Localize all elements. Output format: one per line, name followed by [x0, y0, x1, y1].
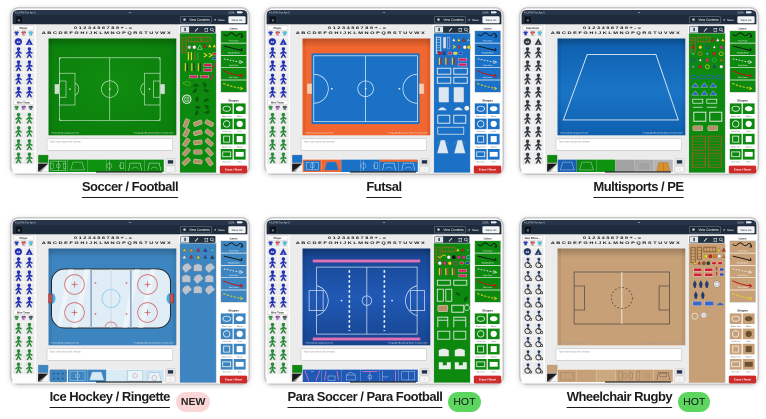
svg-text:Type notes about this session: Type notes about this session	[304, 140, 336, 143]
svg-text:A B C D E F G H I J K L M N O: A B C D E F G H I J K L M N O P Q R S T …	[550, 31, 680, 35]
svg-text:Square Line: Square Line	[222, 355, 232, 358]
svg-text:Circle: Circle	[746, 340, 751, 343]
svg-text:Dash Pass: Dash Pass	[229, 65, 238, 67]
svg-text:Ellipse Line: Ellipse Line	[476, 116, 486, 118]
svg-text:Powered by easy2coach.net: Powered by easy2coach.net	[306, 132, 334, 135]
svg-text:Circle Line: Circle Line	[222, 340, 231, 343]
svg-text:A: A	[537, 251, 539, 255]
svg-text:Lines: Lines	[230, 26, 238, 30]
svg-text:1: 1	[284, 317, 286, 321]
svg-text:Square Line: Square Line	[222, 145, 232, 148]
svg-text:4:13 PM Tue Apr 5: 4:13 PM Tue Apr 5	[524, 12, 545, 15]
svg-text:Straight Arrow: Straight Arrow	[736, 262, 749, 265]
svg-text:100%: 100%	[228, 222, 235, 225]
svg-text:Lines: Lines	[484, 236, 492, 240]
svg-text:Rect: Rect	[492, 371, 496, 374]
svg-text:1: 1	[30, 32, 32, 36]
svg-text:Straight Arrow: Straight Arrow	[736, 52, 749, 55]
svg-text:Straight Arrow: Straight Arrow	[482, 52, 495, 55]
svg-text:Erase / Reset: Erase / Reset	[225, 168, 242, 172]
svg-text:...: ...	[741, 94, 743, 97]
svg-text:Rect: Rect	[238, 371, 242, 374]
svg-text:Lines: Lines	[230, 236, 238, 240]
svg-text:×: ×	[272, 228, 275, 233]
svg-text:↺: ↺	[468, 18, 471, 22]
svg-text:A: A	[537, 41, 539, 45]
svg-text:...: ...	[741, 304, 743, 307]
svg-text:Powered by easy2coach.net: Powered by easy2coach.net	[560, 132, 588, 135]
svg-text:Powered by easy2coach.net: Powered by easy2coach.net	[306, 342, 334, 345]
svg-text:4:13 PM Tue Apr 5: 4:13 PM Tue Apr 5	[269, 12, 290, 15]
svg-text:Shapes: Shapes	[228, 99, 239, 103]
svg-text:Ellipse Line: Ellipse Line	[222, 116, 232, 118]
svg-text:Square: Square	[491, 355, 497, 358]
svg-text:Save: Save	[727, 228, 734, 232]
svg-text:Circle Line: Circle Line	[731, 340, 740, 343]
svg-text:Player: Player	[273, 236, 281, 240]
svg-text:Free Hand: Free Hand	[483, 249, 492, 252]
svg-text:0 1 2 3 4 5 6 7 8 9 + - =: 0 1 2 3 4 5 6 7 8 9 + - =	[328, 236, 386, 240]
svg-text:View Contents: View Contents	[189, 18, 210, 22]
svg-text:Free Hand: Free Hand	[483, 39, 492, 42]
svg-text:1: 1	[284, 242, 286, 246]
svg-text:A: A	[282, 251, 284, 255]
svg-text:Save As: Save As	[485, 18, 497, 22]
svg-text:Save As: Save As	[740, 18, 752, 22]
svg-text:Rect Line: Rect Line	[477, 161, 485, 164]
svg-text:Straight Arrow: Straight Arrow	[482, 262, 495, 265]
svg-text:•••: •••	[383, 12, 386, 14]
svg-text:•••: •••	[383, 222, 386, 224]
svg-text:•••: •••	[637, 12, 640, 14]
svg-text:Run Curve: Run Curve	[738, 76, 747, 79]
svg-text:Ellipse: Ellipse	[745, 326, 751, 328]
svg-text:Ellipse: Ellipse	[491, 326, 497, 328]
svg-text:0 1 2 3 4 5 6 7 8 9 + - =: 0 1 2 3 4 5 6 7 8 9 + - =	[328, 26, 386, 30]
svg-text:Lines: Lines	[484, 26, 492, 30]
svg-text:×: ×	[272, 18, 275, 23]
svg-text:A: A	[28, 41, 30, 45]
svg-text:Mini Team: Mini Team	[271, 101, 285, 105]
svg-text:Straight Arrow: Straight Arrow	[228, 52, 241, 55]
svg-text:Rect: Rect	[238, 161, 242, 164]
svg-text:33: 33	[271, 250, 275, 254]
svg-text:•••: •••	[129, 12, 132, 14]
svg-text:Lines: Lines	[738, 26, 746, 30]
svg-text:Type notes about this session: Type notes about this session	[50, 350, 82, 353]
svg-text:Ellipse Line: Ellipse Line	[730, 116, 740, 118]
svg-text:4:13 PM Tue Apr 5: 4:13 PM Tue Apr 5	[15, 12, 36, 15]
svg-text:Ellipse Line: Ellipse Line	[476, 326, 486, 328]
svg-text:Erase / Reset: Erase / Reset	[225, 378, 242, 382]
svg-text:0 1 2 3 4 5 6 7 8 9 + - =: 0 1 2 3 4 5 6 7 8 9 + - =	[74, 236, 132, 240]
svg-text:Dash Pass: Dash Pass	[483, 275, 492, 277]
svg-text:100%: 100%	[737, 12, 744, 15]
svg-text:Square: Square	[237, 355, 243, 358]
svg-text:Shapes: Shapes	[482, 309, 493, 313]
svg-text:↺: ↺	[214, 18, 217, 22]
svg-text:↺: ↺	[214, 228, 217, 232]
svg-text:Save As: Save As	[231, 18, 243, 22]
svg-text:4:13 PM Tue Apr 5: 4:13 PM Tue Apr 5	[269, 222, 290, 225]
svg-text:Circle Line: Circle Line	[476, 340, 485, 343]
svg-text:Substitute: Substitute	[525, 26, 539, 30]
svg-text:33: 33	[17, 250, 21, 254]
svg-text:100%: 100%	[482, 12, 489, 15]
svg-text:©Copyright Academy Sport 4 Co: ©Copyright Academy Sport 4 Coach 24.2	[387, 132, 428, 135]
svg-text:Save: Save	[218, 228, 225, 232]
svg-text:Save: Save	[727, 18, 734, 22]
svg-text:Square: Square	[745, 145, 751, 148]
svg-text:Dash Pass: Dash Pass	[483, 65, 492, 67]
svg-text:Ellipse: Ellipse	[237, 326, 243, 328]
svg-text:33: 33	[271, 40, 275, 44]
svg-text:Save: Save	[218, 18, 225, 22]
svg-text:View Contents: View Contents	[443, 18, 464, 22]
svg-text:Mini Team: Mini Team	[271, 311, 285, 315]
svg-text:Type notes about this session: Type notes about this session	[558, 140, 590, 143]
svg-text:0 1 2 3 4 5 6 7 8 9 + - =: 0 1 2 3 4 5 6 7 8 9 + - =	[583, 236, 641, 240]
svg-text:A B C D E F G H I J K L M N O: A B C D E F G H I J K L M N O P Q R S T …	[42, 241, 172, 245]
svg-text:0 1 2 3 4 5 6 7 8 9 + - =: 0 1 2 3 4 5 6 7 8 9 + - =	[74, 26, 132, 30]
svg-text:↺: ↺	[468, 228, 471, 232]
svg-text:A B C D E F G H I J K L M N O: A B C D E F G H I J K L M N O P Q R S T …	[296, 241, 426, 245]
svg-text:View Contents: View Contents	[698, 228, 719, 232]
svg-text:Square Line: Square Line	[476, 355, 486, 358]
svg-text:Square: Square	[237, 145, 243, 148]
svg-text:Run Curve: Run Curve	[483, 76, 492, 79]
svg-text:↺: ↺	[722, 228, 725, 232]
svg-text:Free Hand: Free Hand	[229, 39, 238, 42]
svg-text:×: ×	[18, 228, 21, 233]
svg-text:Rect: Rect	[746, 161, 750, 164]
svg-text:Lines: Lines	[738, 236, 746, 240]
svg-text:Ellipse Line: Ellipse Line	[222, 326, 232, 328]
svg-text:©Copyright Academy Sport 4 Co: ©Copyright Academy Sport 4 Coach 24.2	[133, 132, 174, 135]
svg-text:Square Line: Square Line	[730, 145, 740, 148]
svg-text:4:13 PM Tue Apr 5: 4:13 PM Tue Apr 5	[524, 222, 545, 225]
svg-text:33: 33	[17, 40, 21, 44]
svg-text:Rect: Rect	[746, 371, 750, 374]
svg-text:1: 1	[284, 107, 286, 111]
svg-text:•••: •••	[637, 222, 640, 224]
svg-text:1: 1	[277, 317, 279, 321]
svg-text:Square Line: Square Line	[730, 355, 740, 358]
svg-text:33: 33	[525, 40, 529, 44]
svg-text:Dash Pass: Dash Pass	[738, 65, 747, 67]
svg-text:4:13 PM Tue Apr 5: 4:13 PM Tue Apr 5	[15, 222, 36, 225]
svg-text:Erase / Reset: Erase / Reset	[479, 378, 496, 382]
svg-text:Ellipse: Ellipse	[491, 116, 497, 118]
svg-text:A B C D E F G H I J K L M N O: A B C D E F G H I J K L M N O P Q R S T …	[296, 31, 426, 35]
svg-text:1: 1	[539, 242, 541, 246]
svg-text:New Whee...: New Whee...	[524, 236, 540, 240]
svg-text:Ellipse: Ellipse	[745, 116, 751, 118]
svg-text:1: 1	[23, 317, 25, 321]
svg-text:...: ...	[233, 304, 235, 307]
svg-text:View Contents: View Contents	[698, 18, 719, 22]
svg-text:A: A	[28, 251, 30, 255]
svg-text:Player: Player	[273, 26, 281, 30]
svg-text:View Contents: View Contents	[189, 228, 210, 232]
svg-text:Ellipse Line: Ellipse Line	[730, 326, 740, 328]
svg-text:Run Curve: Run Curve	[738, 286, 747, 289]
svg-text:×: ×	[526, 228, 529, 233]
svg-text:1: 1	[532, 242, 534, 246]
svg-text:↺: ↺	[722, 18, 725, 22]
svg-text:Shapes: Shapes	[228, 309, 239, 313]
svg-text:...: ...	[233, 94, 235, 97]
svg-text:Rect Line: Rect Line	[731, 161, 739, 164]
svg-text:Square: Square	[745, 355, 751, 358]
svg-text:Circle Line: Circle Line	[222, 130, 231, 133]
svg-text:100%: 100%	[228, 12, 235, 15]
svg-text:©Copyright Academy Sport 4 Co: ©Copyright Academy Sport 4 Coach 24.2	[642, 342, 683, 345]
svg-text:1: 1	[284, 32, 286, 36]
svg-text:•••: •••	[129, 222, 132, 224]
svg-text:Circle: Circle	[746, 130, 751, 133]
svg-text:1: 1	[277, 32, 279, 36]
svg-text:Player: Player	[19, 26, 27, 30]
svg-text:1: 1	[30, 317, 32, 321]
svg-text:...: ...	[487, 94, 489, 97]
svg-text:A B C D E F G H I J K L M N O: A B C D E F G H I J K L M N O P Q R S T …	[42, 31, 172, 35]
svg-text:Rect Line: Rect Line	[223, 371, 231, 374]
svg-text:View Contents: View Contents	[443, 228, 464, 232]
svg-text:Run Curve: Run Curve	[229, 76, 238, 79]
svg-text:100%: 100%	[482, 222, 489, 225]
svg-text:1: 1	[277, 242, 279, 246]
svg-text:Run Curve: Run Curve	[483, 286, 492, 289]
svg-text:Erase / Reset: Erase / Reset	[734, 168, 751, 172]
svg-text:Powered by easy2coach.net: Powered by easy2coach.net	[560, 342, 588, 345]
svg-text:Square: Square	[491, 145, 497, 148]
svg-text:Dash Pass: Dash Pass	[229, 275, 238, 277]
svg-text:Run Curve: Run Curve	[229, 286, 238, 289]
svg-text:Shapes: Shapes	[737, 309, 748, 313]
svg-text:Powered by easy2coach.net: Powered by easy2coach.net	[52, 132, 80, 135]
svg-text:Rect: Rect	[492, 161, 496, 164]
svg-text:1: 1	[277, 107, 279, 111]
svg-text:1: 1	[30, 242, 32, 246]
svg-text:Mini Team: Mini Team	[17, 311, 31, 315]
svg-text:Save As: Save As	[740, 228, 752, 232]
svg-text:100%: 100%	[737, 222, 744, 225]
svg-text:A B C D E F G H I J K L M N O: A B C D E F G H I J K L M N O P Q R S T …	[550, 241, 680, 245]
svg-text:1: 1	[23, 107, 25, 111]
svg-text:×: ×	[18, 18, 21, 23]
svg-text:Circle: Circle	[491, 130, 496, 133]
svg-text:0 1 2 3 4 5 6 7 8 9 + - =: 0 1 2 3 4 5 6 7 8 9 + - =	[583, 26, 641, 30]
svg-text:Mini Team: Mini Team	[17, 101, 31, 105]
svg-text:Save: Save	[472, 18, 479, 22]
svg-text:Rect Line: Rect Line	[223, 161, 231, 164]
svg-text:Shapes: Shapes	[482, 99, 493, 103]
svg-text:Circle: Circle	[237, 340, 242, 343]
svg-text:1: 1	[539, 32, 541, 36]
svg-text:×: ×	[526, 18, 529, 23]
svg-text:Circle Line: Circle Line	[731, 130, 740, 133]
svg-text:Free Hand: Free Hand	[738, 249, 747, 252]
svg-text:©Copyright Academy Sport 4 Co: ©Copyright Academy Sport 4 Coach 24.2	[642, 132, 683, 135]
svg-text:1: 1	[30, 107, 32, 111]
svg-text:A: A	[282, 41, 284, 45]
svg-text:Erase / Reset: Erase / Reset	[734, 378, 751, 382]
svg-text:Save As: Save As	[231, 228, 243, 232]
svg-text:Erase / Reset: Erase / Reset	[479, 168, 496, 172]
svg-text:©Copyright Academy Sport 4 Co: ©Copyright Academy Sport 4 Coach 24.2	[387, 342, 428, 345]
svg-text:Powered by easy2coach.net: Powered by easy2coach.net	[52, 342, 80, 345]
svg-text:Square Line: Square Line	[476, 145, 486, 148]
svg-text:Circle: Circle	[491, 340, 496, 343]
svg-text:...: ...	[487, 304, 489, 307]
svg-text:Player: Player	[19, 236, 27, 240]
svg-text:Dash Pass: Dash Pass	[738, 275, 747, 277]
svg-text:Circle Line: Circle Line	[476, 130, 485, 133]
svg-text:1: 1	[23, 242, 25, 246]
svg-text:Circle: Circle	[237, 130, 242, 133]
svg-text:1: 1	[532, 32, 534, 36]
svg-text:Type notes about this session: Type notes about this session	[50, 140, 82, 143]
svg-text:1: 1	[23, 32, 25, 36]
svg-text:Type notes about this session: Type notes about this session	[304, 350, 336, 353]
svg-text:Type notes about this session: Type notes about this session	[558, 350, 590, 353]
svg-text:Shapes: Shapes	[737, 99, 748, 103]
svg-text:Ellipse: Ellipse	[237, 116, 243, 118]
svg-text:©Copyright Academy Sport 4 Co: ©Copyright Academy Sport 4 Coach 24.2	[133, 342, 174, 345]
svg-text:Free Hand: Free Hand	[229, 249, 238, 252]
svg-text:Save As: Save As	[485, 228, 497, 232]
svg-text:Save: Save	[472, 228, 479, 232]
svg-text:Rect Line: Rect Line	[477, 371, 485, 374]
svg-text:Free Hand: Free Hand	[738, 39, 747, 42]
svg-text:33: 33	[525, 250, 529, 254]
svg-text:Straight Arrow: Straight Arrow	[228, 262, 241, 265]
svg-text:Rect Line: Rect Line	[731, 371, 739, 374]
